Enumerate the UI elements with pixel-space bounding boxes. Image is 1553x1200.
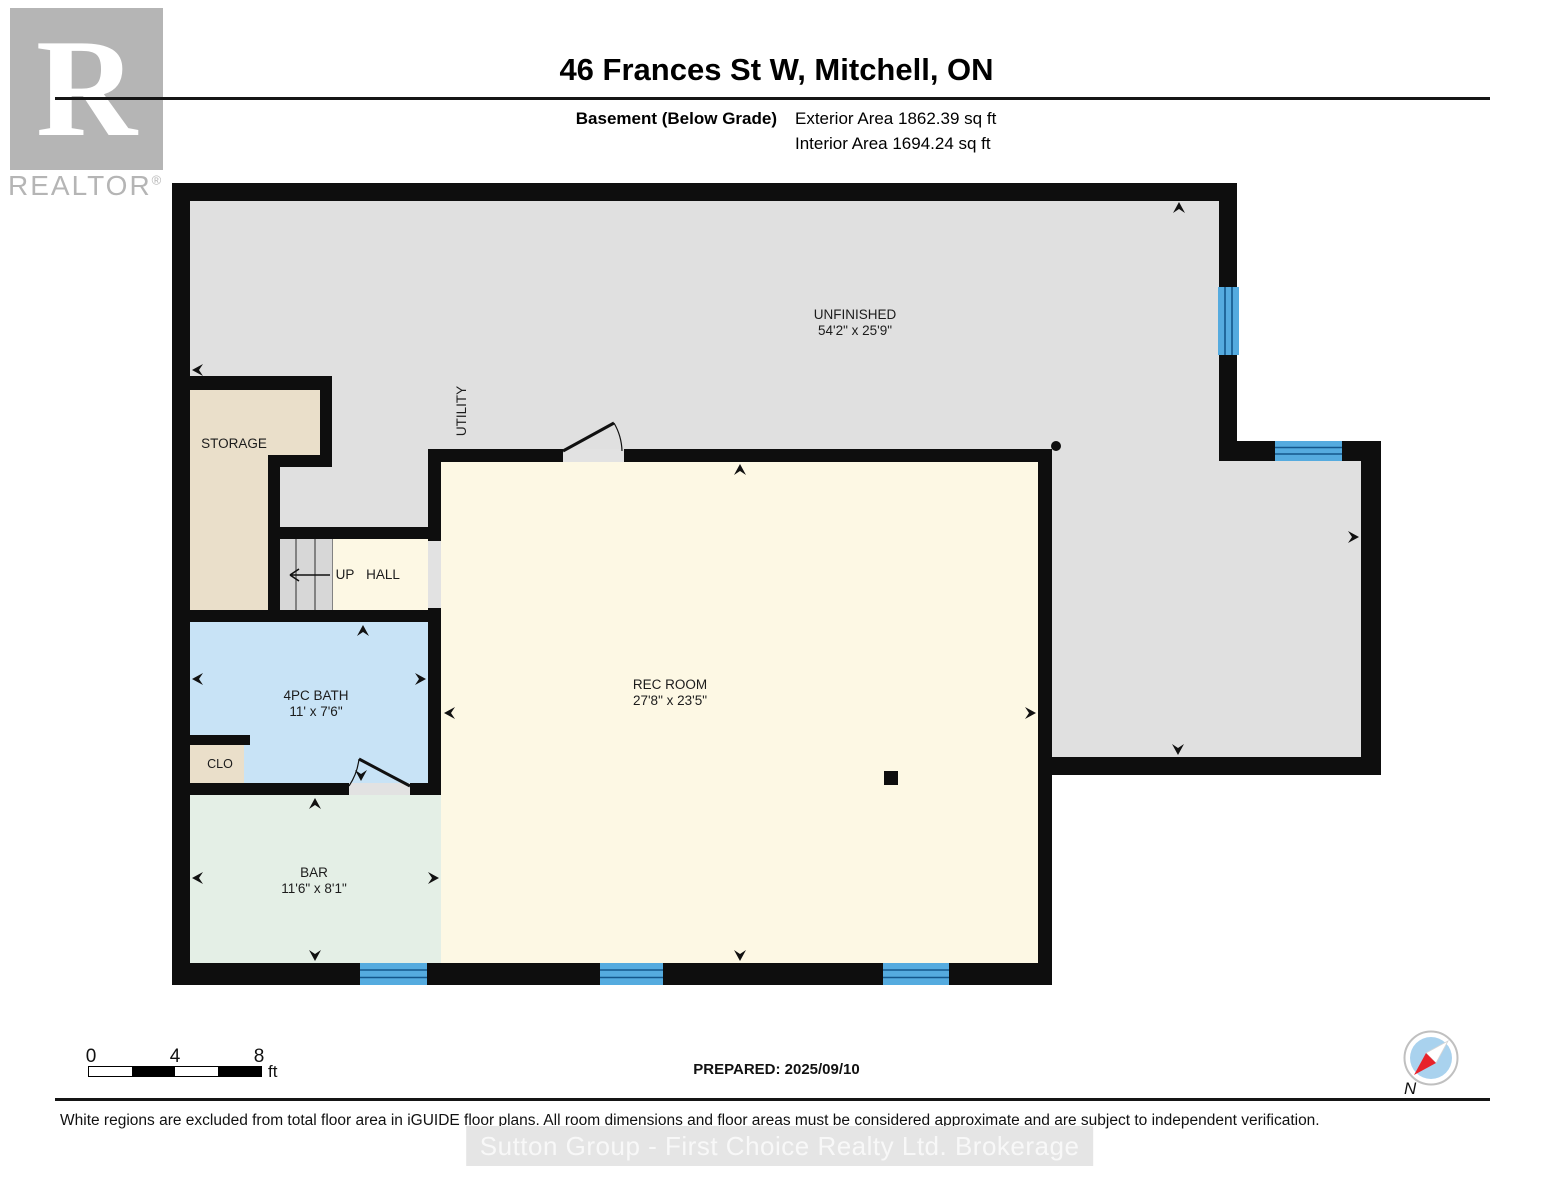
window-bottom-3: [883, 963, 949, 985]
room-label-rec-room: REC ROOM 27'8" x 23'5": [633, 677, 707, 709]
camera-dot: [1051, 441, 1061, 451]
brokerage-watermark: Sutton Group - First Choice Realty Ltd. …: [466, 1126, 1094, 1166]
wall-storage-right-lower: [268, 467, 280, 622]
opening-hall-rec: [428, 541, 441, 608]
window-right-wall: [1218, 287, 1239, 355]
room-dims: 11' x 7'6": [283, 704, 348, 720]
opening-rec-utility: [563, 449, 624, 462]
window-step-wall: [1275, 441, 1342, 461]
wall-hall-top: [268, 527, 441, 539]
room-label-utility: UTILITY: [454, 386, 470, 436]
wall-storage-right-upper: [320, 390, 332, 457]
room-label-hall: HALL: [366, 567, 400, 583]
room-name: 4PC BATH: [283, 688, 348, 704]
room-name: UTILITY: [454, 386, 470, 436]
wall-rec-left: [428, 449, 441, 795]
floor-plan-svg: [0, 0, 1553, 1200]
room-label-bath: 4PC BATH 11' x 7'6": [283, 688, 348, 720]
room-name: UP: [336, 567, 355, 583]
compass-north-label: N: [1404, 1079, 1416, 1099]
wall-rec-top: [428, 449, 1052, 462]
prepared-date: PREPARED: 2025/09/10: [0, 1061, 1553, 1078]
floor-unfinished-right: [1052, 449, 1361, 757]
floor-rec-room: [441, 462, 1038, 963]
label-up: UP: [336, 567, 355, 583]
wall-rec-right: [1038, 449, 1052, 985]
room-name: UNFINISHED: [814, 307, 897, 323]
floor-unfinished-main: [190, 201, 1219, 449]
floor-plan-page: R REALTOR® 46 Frances St W, Mitchell, ON…: [0, 0, 1553, 1200]
room-name: STORAGE: [201, 436, 267, 452]
wall-storage-step: [268, 455, 332, 467]
room-name: BAR: [281, 865, 347, 881]
window-bottom-2: [600, 963, 663, 985]
room-name: HALL: [366, 567, 400, 583]
footer-rule: [55, 1098, 1490, 1101]
wall-storage-top: [190, 376, 332, 390]
room-dims: 27'8" x 23'5": [633, 693, 707, 709]
room-dims: 11'6" x 8'1": [281, 881, 347, 897]
wall-bath-top: [172, 610, 441, 622]
support-post: [884, 771, 898, 785]
room-name: REC ROOM: [633, 677, 707, 693]
room-label-bar: BAR 11'6" x 8'1": [281, 865, 347, 897]
room-label-unfinished: UNFINISHED 54'2" x 25'9": [814, 307, 897, 339]
wall-clo-top: [190, 735, 250, 745]
room-label-clo: CLO: [207, 756, 233, 772]
room-name: CLO: [207, 756, 233, 772]
room-label-storage: STORAGE: [201, 436, 267, 452]
window-bottom-1: [360, 963, 427, 985]
floor-storage-lower: [190, 455, 268, 610]
room-dims: 54'2" x 25'9": [814, 323, 897, 339]
opening-bath-bar: [349, 783, 410, 795]
